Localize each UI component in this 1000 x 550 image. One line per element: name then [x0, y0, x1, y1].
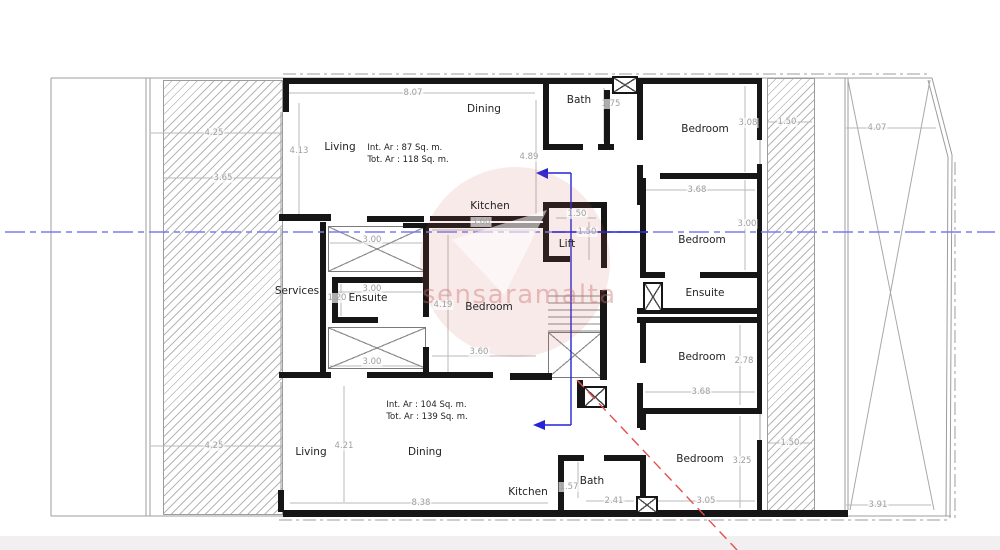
room-label: Ensuite: [686, 287, 725, 299]
area-label: Int. Ar : 104 Sq. m.Tot. Ar : 139 Sq. m.: [386, 400, 467, 424]
area-line: Int. Ar : 104 Sq. m.: [386, 400, 467, 412]
room-label: Kitchen: [508, 486, 547, 498]
dimension-label: 3.68: [687, 185, 708, 195]
dimension-label: 2.78: [734, 356, 755, 366]
room-label: Living: [324, 141, 355, 153]
area-label: Int. Ar : 87 Sq. m.Tot. Ar : 118 Sq. m.: [367, 143, 448, 167]
dimension-label: 4.21: [334, 441, 355, 451]
dimension-label: 1.20: [327, 293, 348, 303]
dimension-label: 1.50: [577, 227, 598, 237]
dimension-label: 4.89: [519, 152, 540, 162]
dimension-label: 8.38: [411, 498, 432, 508]
room-label: Bedroom: [678, 234, 726, 246]
dimension-label: 1.50: [780, 438, 801, 448]
room-label: Services: [275, 285, 319, 297]
area-line: Tot. Ar : 118 Sq. m.: [367, 155, 448, 167]
dimension-label: 8.07: [403, 88, 424, 98]
dimension-label: 1.57: [559, 482, 580, 492]
dimension-label: 3.60: [471, 217, 492, 227]
dimension-label: 3.00: [737, 219, 758, 229]
dimension-label: 1.50: [567, 209, 588, 219]
dimension-label: 3.05: [696, 496, 717, 506]
floor-plan-canvas: sensaramalta LivingDiningKitchenBathBedr…: [0, 0, 1000, 550]
dimension-label: 3.68: [691, 387, 712, 397]
dimension-label: 3.08: [738, 118, 759, 128]
room-label: Bath: [567, 94, 591, 106]
dimension-label: 3.00: [362, 284, 383, 294]
area-line: Int. Ar : 87 Sq. m.: [367, 143, 448, 155]
dimension-label: 3.65: [213, 173, 234, 183]
area-line: Tot. Ar : 139 Sq. m.: [386, 412, 467, 424]
dimension-label: 4.19: [433, 300, 454, 310]
room-label: Bedroom: [676, 453, 724, 465]
dimension-label: 3.60: [469, 347, 490, 357]
room-label: Kitchen: [470, 200, 509, 212]
room-label: Bath: [580, 475, 604, 487]
room-label: Bedroom: [465, 301, 513, 313]
room-label: Dining: [467, 103, 501, 115]
dimension-label: 4.25: [204, 128, 225, 138]
dimension-label: 3.25: [732, 456, 753, 466]
dimension-label: 4.25: [204, 441, 225, 451]
room-label: Bedroom: [678, 351, 726, 363]
dimension-label: 4.07: [867, 123, 888, 133]
annotation-labels: LivingDiningKitchenBathBedroomBedroomEns…: [0, 0, 1000, 550]
room-label: Dining: [408, 446, 442, 458]
dimension-label: 3.91: [868, 500, 889, 510]
dimension-label: 2.41: [604, 496, 625, 506]
dimension-label: 1.75: [601, 99, 622, 109]
room-label: Lift: [559, 238, 575, 250]
dimension-label: 3.00: [362, 357, 383, 367]
dimension-label: 1.50: [777, 117, 798, 127]
room-label: Living: [295, 446, 326, 458]
room-label: Bedroom: [681, 123, 729, 135]
dimension-label: 3.00: [362, 235, 383, 245]
dimension-label: 4.13: [289, 146, 310, 156]
